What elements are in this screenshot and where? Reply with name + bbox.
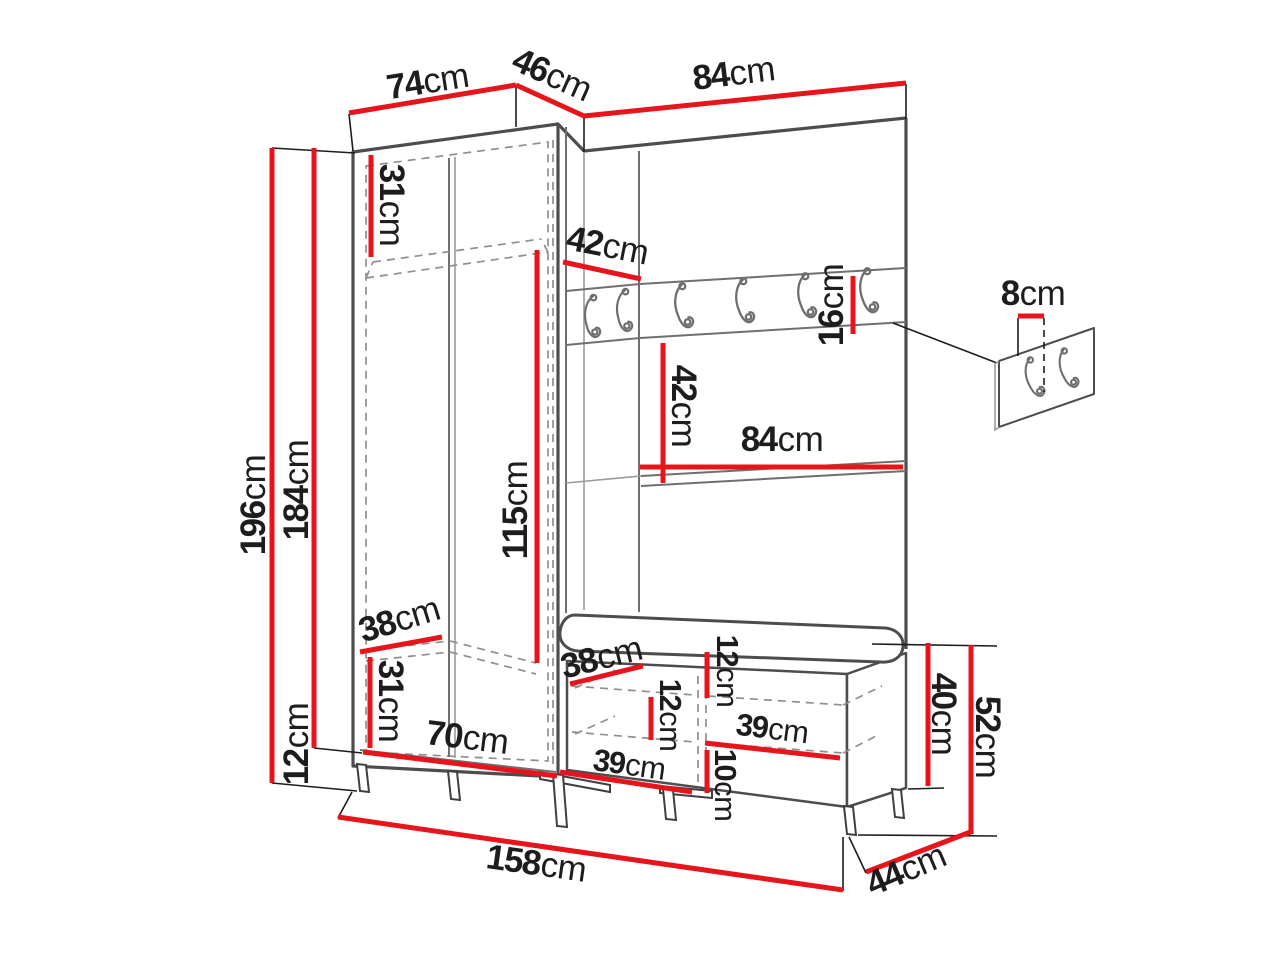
dim-panel-width: 84cm	[741, 420, 824, 459]
dim-bottom-compartment-height: 31cm	[371, 660, 410, 743]
dim-cabinet-height: 184cm	[277, 440, 316, 541]
dim-bench-box-height: 40cm	[924, 673, 963, 756]
dim-shelf-clearance: 42cm	[664, 365, 703, 448]
dim-top-compartment-height: 31cm	[372, 164, 411, 247]
dim-interior-height: 115cm	[496, 461, 535, 560]
dim-bench-left-clearance: 12cm	[653, 679, 688, 752]
dim-bench-upper-clearance: 12cm	[710, 635, 745, 708]
dim-total-height: 196cm	[234, 455, 273, 556]
dim-bench-total-height: 52cm	[968, 696, 1007, 779]
dim-leg-height: 12cm	[277, 703, 316, 786]
dim-wall-hook-offset: 8cm	[1001, 274, 1066, 313]
dim-hook-rail-height: 16cm	[812, 264, 851, 347]
furniture-dimension-diagram: 74cm 46cm 84cm 196cm 184cm 12cm 31cm 42c…	[0, 0, 1277, 957]
dim-bench-bottom-clearance: 10cm	[708, 749, 743, 822]
